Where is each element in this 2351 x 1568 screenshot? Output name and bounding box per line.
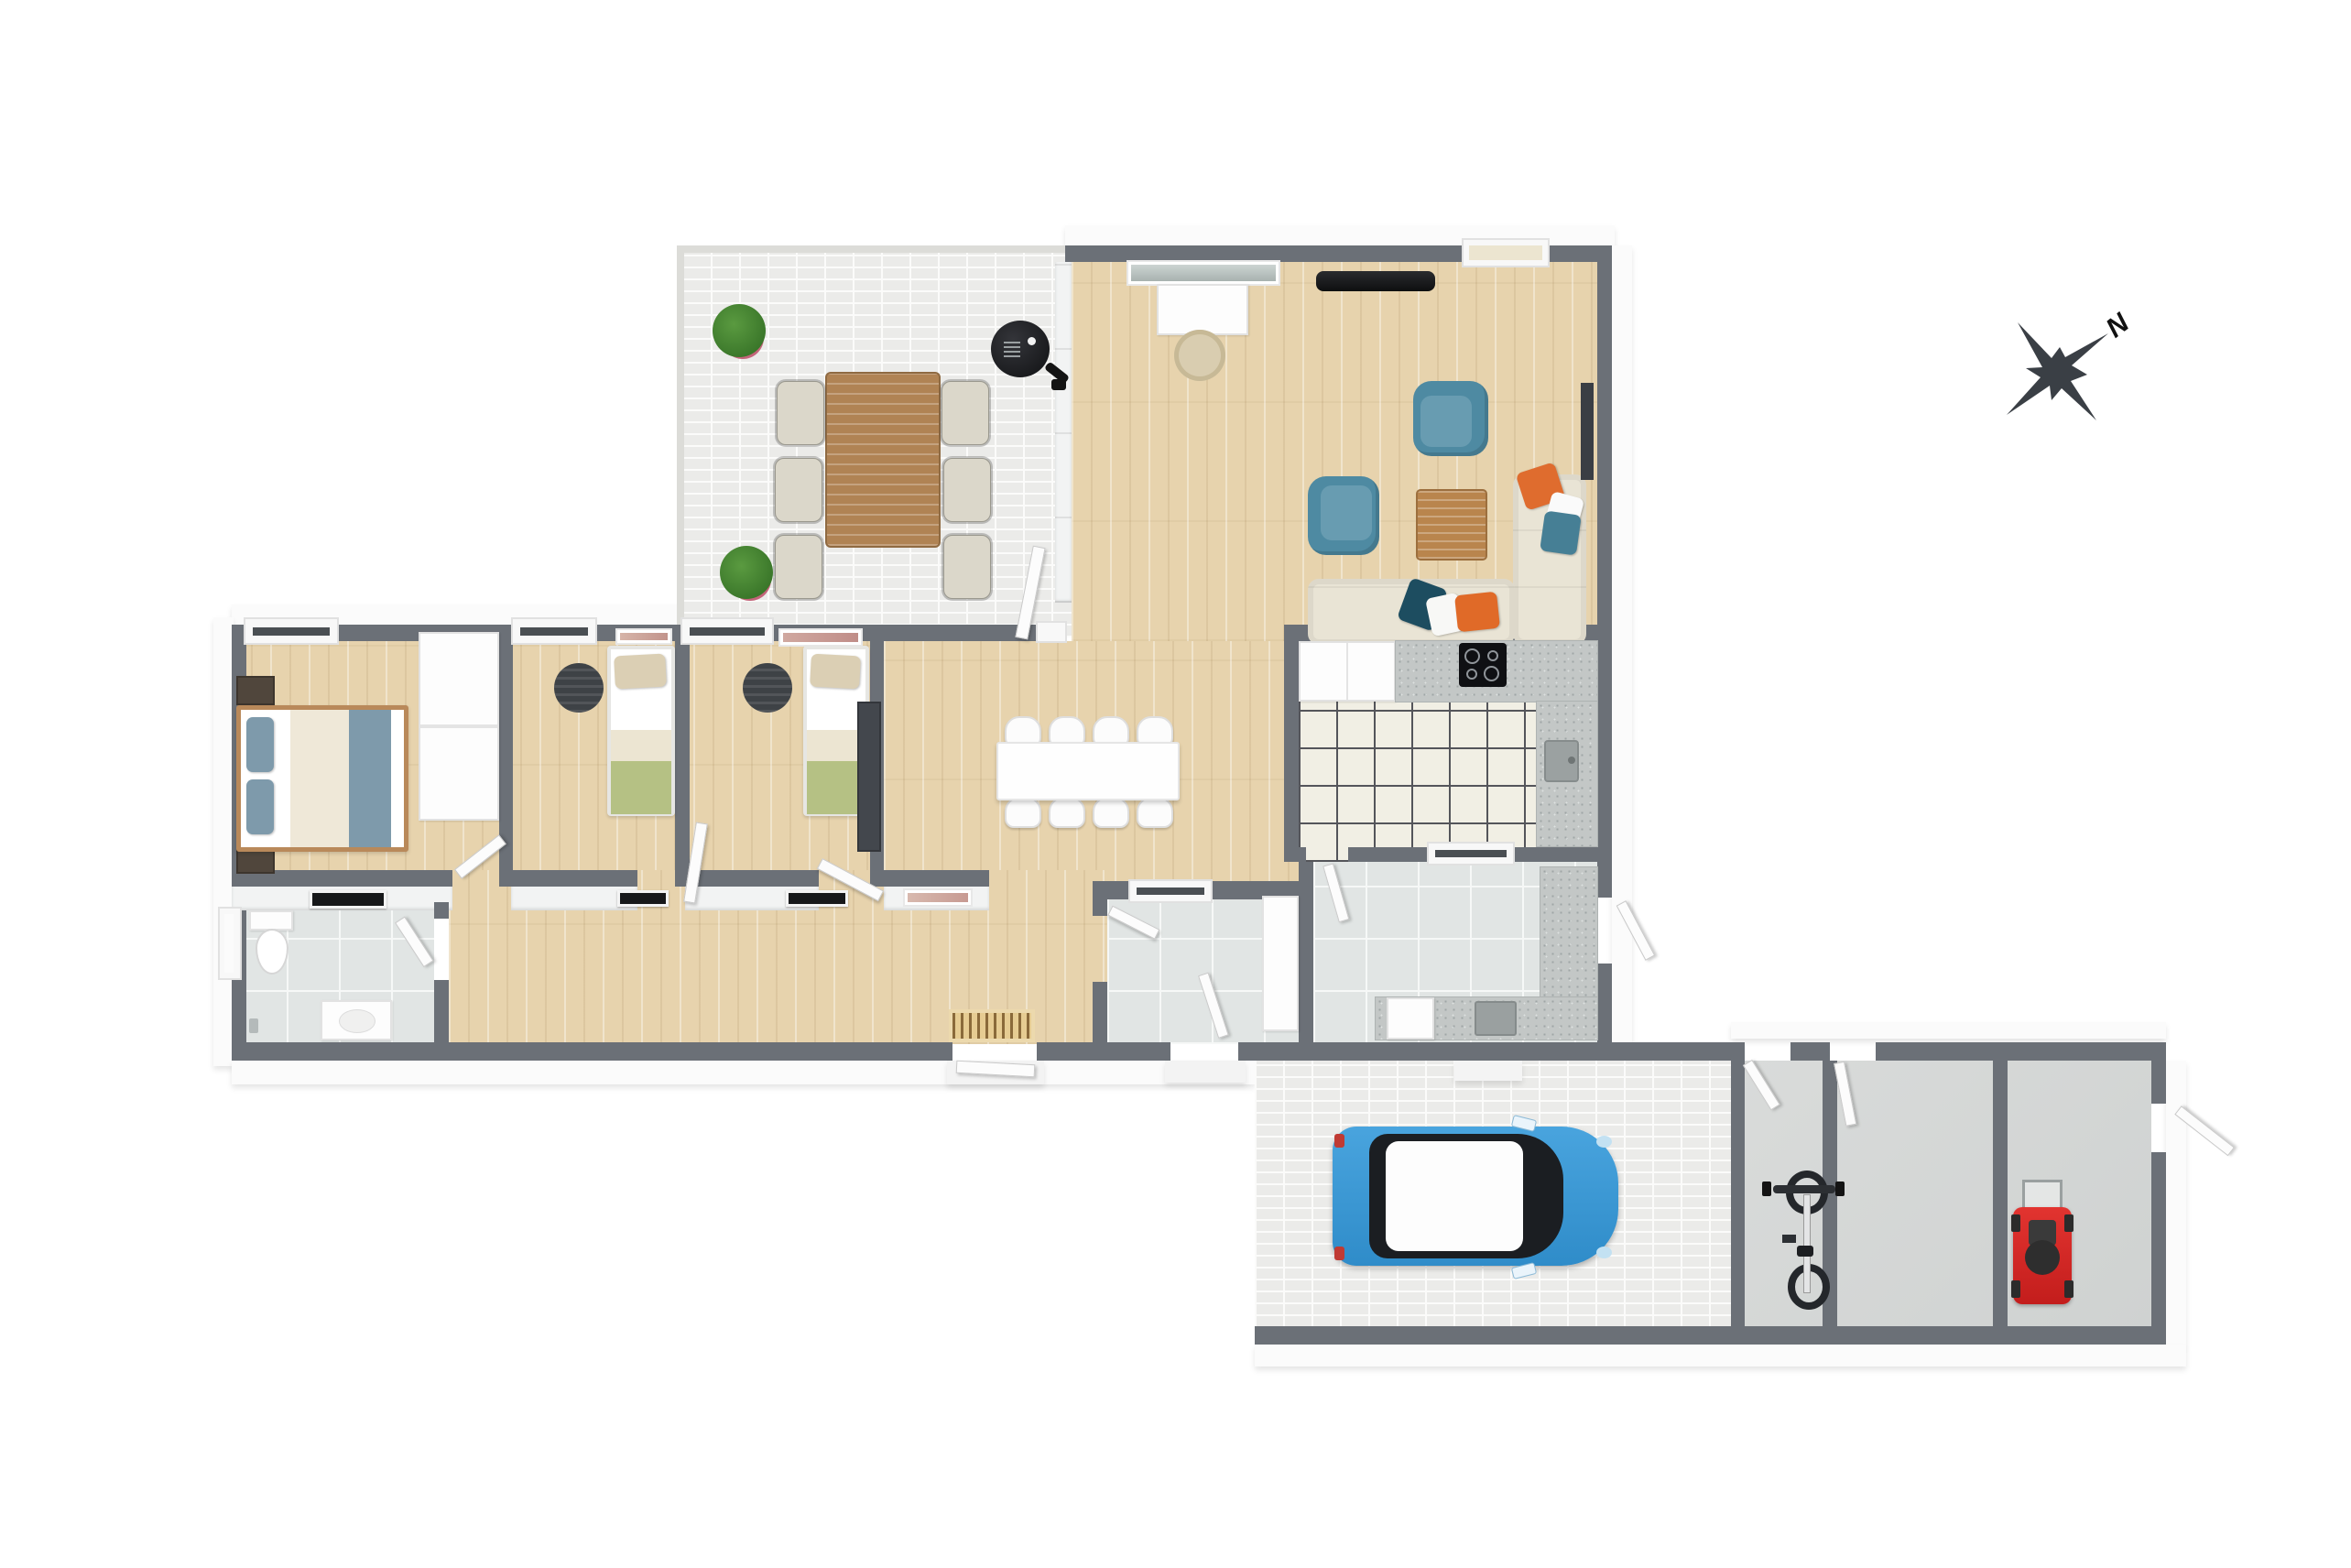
- kettle-grill: [991, 321, 1073, 397]
- window-living-north: [1462, 238, 1550, 267]
- armchair: [1308, 476, 1379, 555]
- wall-terrace-living: [1055, 262, 1072, 603]
- dining-table: [996, 742, 1180, 800]
- carport-step: [1454, 1061, 1522, 1081]
- potted-plant: [713, 304, 769, 365]
- single-bed: [607, 646, 675, 816]
- wall-bedrooms-south: [685, 870, 819, 887]
- wall-hook: [1835, 1181, 1845, 1196]
- master-wardrobe: [419, 632, 499, 821]
- rear-step: [1165, 1061, 1246, 1083]
- wall-bathroom-east: [434, 902, 449, 919]
- wall-rear-entry-west: [1093, 982, 1107, 1042]
- window-master: [244, 617, 339, 645]
- wall-storage-north: [1790, 1042, 1830, 1061]
- window-bathroom-west: [218, 907, 242, 980]
- outdoor-chair: [775, 458, 822, 522]
- utility-sink: [1475, 1001, 1517, 1036]
- wall-vent-bedroom-3: [786, 890, 848, 907]
- dark-wardrobe: [857, 702, 881, 852]
- wall-tv: [1316, 271, 1435, 291]
- terrace-railing: [677, 245, 684, 637]
- wall-south: [232, 1042, 952, 1061]
- outdoor-chair: [941, 381, 989, 445]
- wall-art-hall: [903, 888, 973, 907]
- dining-chair: [1093, 797, 1129, 828]
- exterior-edge: [1731, 1022, 2166, 1039]
- potted-plant: [720, 546, 777, 606]
- window-kitchen-utility: [1427, 842, 1515, 866]
- utility-counter-right: [1540, 867, 1597, 997]
- wall-rear-entry-west: [1093, 881, 1107, 916]
- cushion: [1454, 592, 1500, 633]
- wall-vent-bedroom-2: [617, 890, 669, 907]
- washer: [1387, 997, 1434, 1040]
- wall-panel: [1581, 383, 1594, 480]
- wall-vent-master: [310, 890, 386, 909]
- wall-hook: [1762, 1181, 1771, 1196]
- desk-chair: [1174, 330, 1225, 381]
- outdoor-chair: [943, 535, 991, 599]
- wall-storage-east: [2151, 1061, 2166, 1104]
- dining-chair: [1049, 797, 1085, 828]
- cooktop: [1459, 643, 1507, 687]
- floor-plan: N: [0, 0, 2351, 1568]
- exterior-edge: [213, 617, 234, 1066]
- lawn-mower: [2013, 1180, 2072, 1304]
- wall-east: [1597, 964, 1612, 1061]
- vanity-sink: [321, 1000, 392, 1040]
- exterior-edge: [2166, 1061, 2186, 1346]
- dining-chair: [1137, 797, 1173, 828]
- desk: [1157, 284, 1248, 335]
- outdoor-chair: [943, 458, 991, 522]
- wall-kitchen-west: [1284, 625, 1299, 862]
- double-bed: [236, 705, 408, 852]
- exterior-edge: [1612, 245, 1632, 1061]
- wall-bathroom-east: [434, 980, 449, 1042]
- terrace-door-frame: [1036, 621, 1067, 643]
- wall-utility-west: [1299, 862, 1313, 1042]
- nightstand: [236, 676, 275, 705]
- kitchen-sink: [1544, 740, 1579, 782]
- wall-south: [1037, 1042, 1170, 1061]
- tall-cabinet: [1262, 896, 1299, 1031]
- exterior-edge: [232, 1061, 1255, 1084]
- terrace-railing: [677, 245, 1072, 253]
- wall-south-carport: [1255, 1326, 2166, 1345]
- wall-art-bedroom-2: [615, 628, 672, 645]
- outdoor-chair: [777, 381, 824, 445]
- cushion: [1540, 510, 1582, 555]
- outdoor-dining-table: [827, 374, 939, 546]
- window-rear-entry: [1128, 879, 1213, 903]
- wall-south: [1238, 1042, 1745, 1061]
- dining-chair: [1005, 797, 1041, 828]
- bathroom-faucet: [249, 1018, 258, 1033]
- armchair: [1413, 381, 1488, 456]
- coffee-table: [1418, 491, 1486, 559]
- wall-kitchen-south: [1284, 847, 1306, 862]
- round-rug: [554, 663, 604, 713]
- exterior-edge: [1255, 1345, 2186, 1367]
- wall-dining-south: [884, 870, 989, 887]
- round-rug: [743, 663, 792, 713]
- outdoor-chair: [775, 535, 822, 599]
- bicycle: [1769, 1171, 1839, 1313]
- wall-storage-inner2: [1993, 1061, 2008, 1328]
- wall-storage-east: [2151, 1152, 2166, 1328]
- blue-car: [1333, 1119, 1618, 1275]
- wall-east: [1597, 245, 1612, 898]
- wall-bedrooms-south: [511, 870, 637, 887]
- wall-storage-north: [1876, 1042, 2166, 1061]
- wall-art-living: [1127, 260, 1280, 286]
- wall-storage-west: [1731, 1061, 1745, 1328]
- wall-bed2-east: [675, 625, 690, 887]
- slatted-doormat: [949, 1009, 1035, 1042]
- kitchen-cabinets: [1299, 641, 1396, 702]
- wall-art-bedroom-3: [778, 628, 863, 647]
- toilet: [249, 910, 295, 976]
- window-bedroom-2: [511, 617, 597, 645]
- window-bedroom-3: [680, 617, 774, 645]
